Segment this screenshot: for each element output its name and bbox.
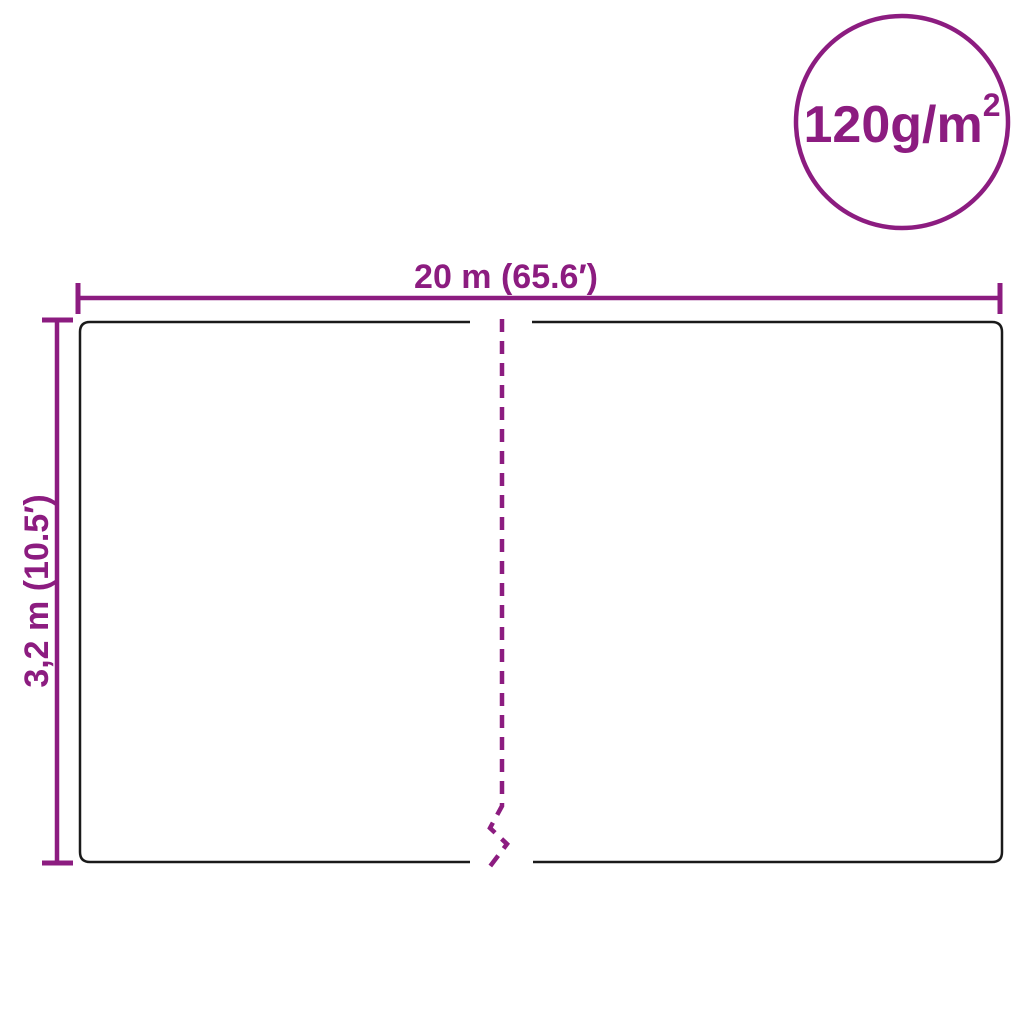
gsm-badge-value: 120g/m xyxy=(803,96,982,154)
product-outline xyxy=(80,319,1002,869)
width-dimension: 20 m (65.6′) xyxy=(78,258,1000,314)
gsm-badge-superscript: 2 xyxy=(983,87,1001,123)
gsm-badge: 120g/m2 xyxy=(796,16,1008,228)
diagram-canvas: 120g/m2 20 m (65.6′) 3,2 m (10.5′) xyxy=(0,0,1024,1024)
length-break-line xyxy=(488,319,507,869)
width-dimension-label: 20 m (65.6′) xyxy=(414,258,598,296)
product-outline-left-half xyxy=(80,322,470,862)
product-outline-right-half xyxy=(532,322,1002,862)
height-dimension: 3,2 m (10.5′) xyxy=(18,320,73,863)
gsm-badge-label: 120g/m2 xyxy=(803,87,1000,154)
product-dimension-diagram: 120g/m2 20 m (65.6′) 3,2 m (10.5′) xyxy=(0,0,1024,1024)
height-dimension-label: 3,2 m (10.5′) xyxy=(18,494,56,687)
